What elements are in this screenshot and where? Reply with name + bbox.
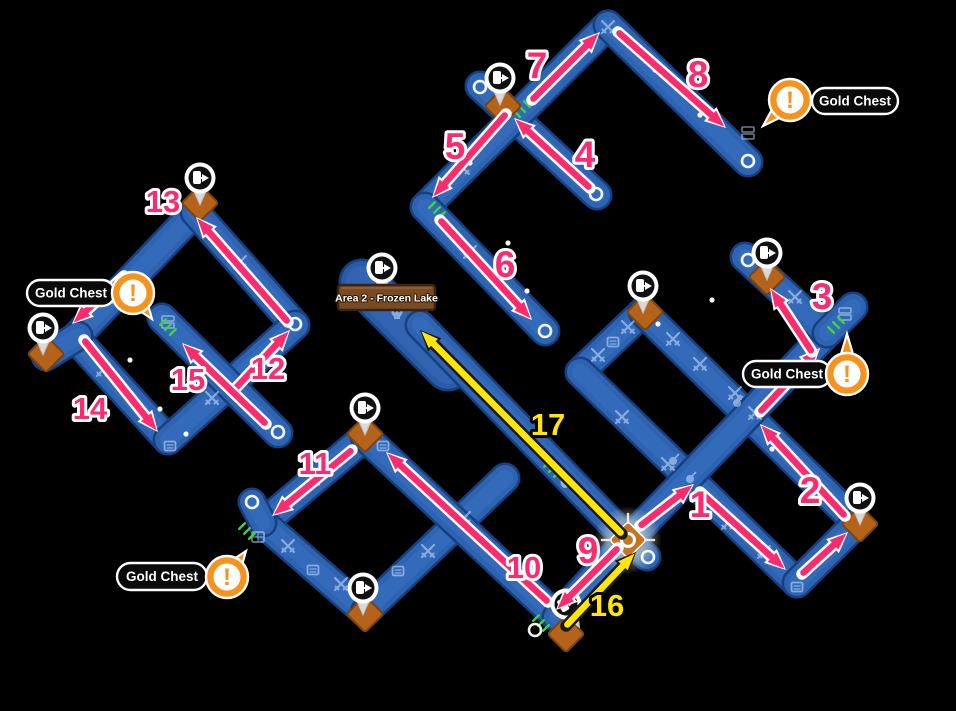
gold-chest-label-text: Gold Chest — [35, 286, 108, 301]
move-number-17: 17 — [531, 407, 565, 442]
move-number-3: 3 — [812, 276, 833, 317]
frozen-lake-walkthrough-map: Gold Chest!Gold Chest!Gold Chest!Gold Ch… — [0, 0, 956, 711]
move-number-1: 1 — [690, 484, 711, 525]
move-number-10: 10 — [507, 550, 541, 585]
gold-chest-label-text: Gold Chest — [126, 569, 199, 584]
move-number-2: 2 — [800, 470, 821, 511]
move-number-5: 5 — [445, 126, 466, 167]
path-dot — [709, 297, 714, 302]
gold-chest-label-text: Gold Chest — [819, 94, 892, 109]
area-sign-text: Area 2 - Frozen Lake — [335, 293, 438, 305]
move-number-12: 12 — [251, 351, 285, 386]
gold-chest-label-text: Gold Chest — [751, 367, 824, 382]
path-dot — [157, 406, 162, 411]
exclamation-icon: ! — [129, 280, 137, 307]
move-number-4: 4 — [575, 134, 596, 175]
gold-chest-label: Gold Chest — [812, 88, 898, 114]
exclamation-icon: ! — [786, 87, 794, 114]
move-number-13: 13 — [146, 184, 180, 219]
move-number-7: 7 — [527, 45, 548, 86]
move-number-11: 11 — [299, 446, 332, 481]
area-sign: Area 2 - Frozen Lake — [335, 285, 438, 310]
move-number-16: 16 — [590, 588, 624, 623]
path-dot — [524, 288, 529, 293]
gold-chest-label: Gold Chest — [117, 563, 207, 590]
path-dot — [183, 431, 188, 436]
path-dot — [127, 357, 132, 362]
gold-chest-label: Gold Chest — [743, 361, 831, 387]
path-dot — [655, 321, 660, 326]
move-number-15: 15 — [171, 362, 205, 397]
move-number-6: 6 — [495, 244, 516, 285]
move-number-9: 9 — [578, 530, 599, 571]
exclamation-icon: ! — [223, 564, 231, 591]
move-number-14: 14 — [73, 391, 108, 426]
map-viewport[interactable]: Gold Chest!Gold Chest!Gold Chest!Gold Ch… — [0, 0, 956, 711]
exclamation-icon: ! — [843, 361, 851, 388]
move-number-8: 8 — [688, 54, 709, 95]
gold-chest-label: Gold Chest — [27, 280, 115, 306]
